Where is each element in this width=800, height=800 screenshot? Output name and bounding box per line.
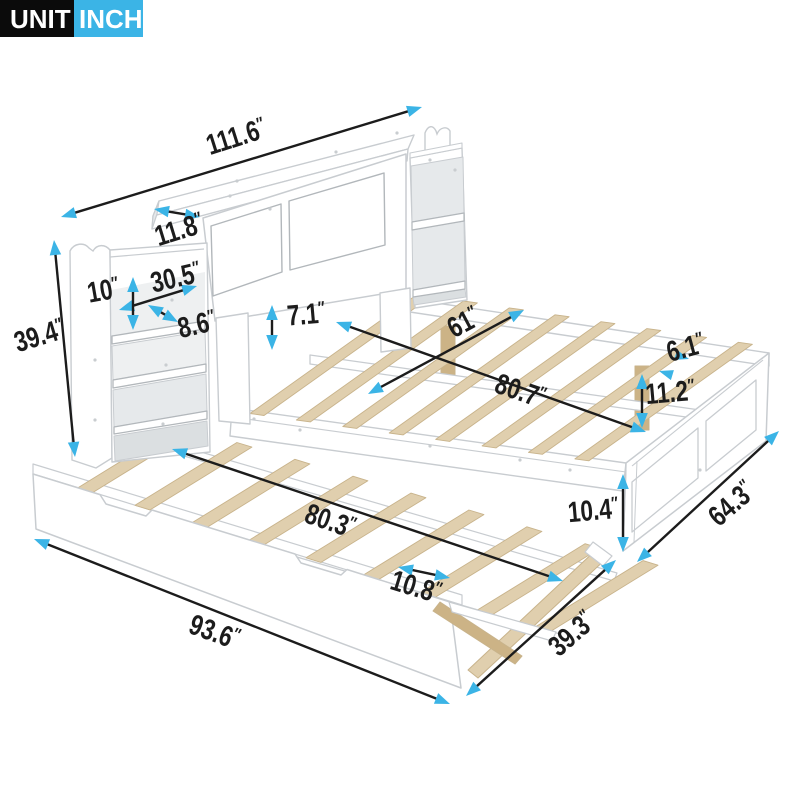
svg-text:INCH: INCH [79, 4, 143, 34]
svg-text:7.1″: 7.1″ [286, 296, 327, 333]
svg-text:93.6″: 93.6″ [185, 607, 244, 656]
svg-text:8.6″: 8.6″ [174, 304, 219, 345]
svg-text:11.2″: 11.2″ [644, 373, 696, 411]
svg-text:10.4″: 10.4″ [566, 491, 620, 529]
svg-text:6.1″: 6.1″ [663, 326, 709, 368]
svg-text:39.4″: 39.4″ [10, 312, 69, 359]
svg-text:39.3″: 39.3″ [541, 604, 601, 663]
svg-text:111.6″: 111.6″ [202, 111, 270, 161]
svg-text:UNIT: UNIT [10, 4, 71, 34]
